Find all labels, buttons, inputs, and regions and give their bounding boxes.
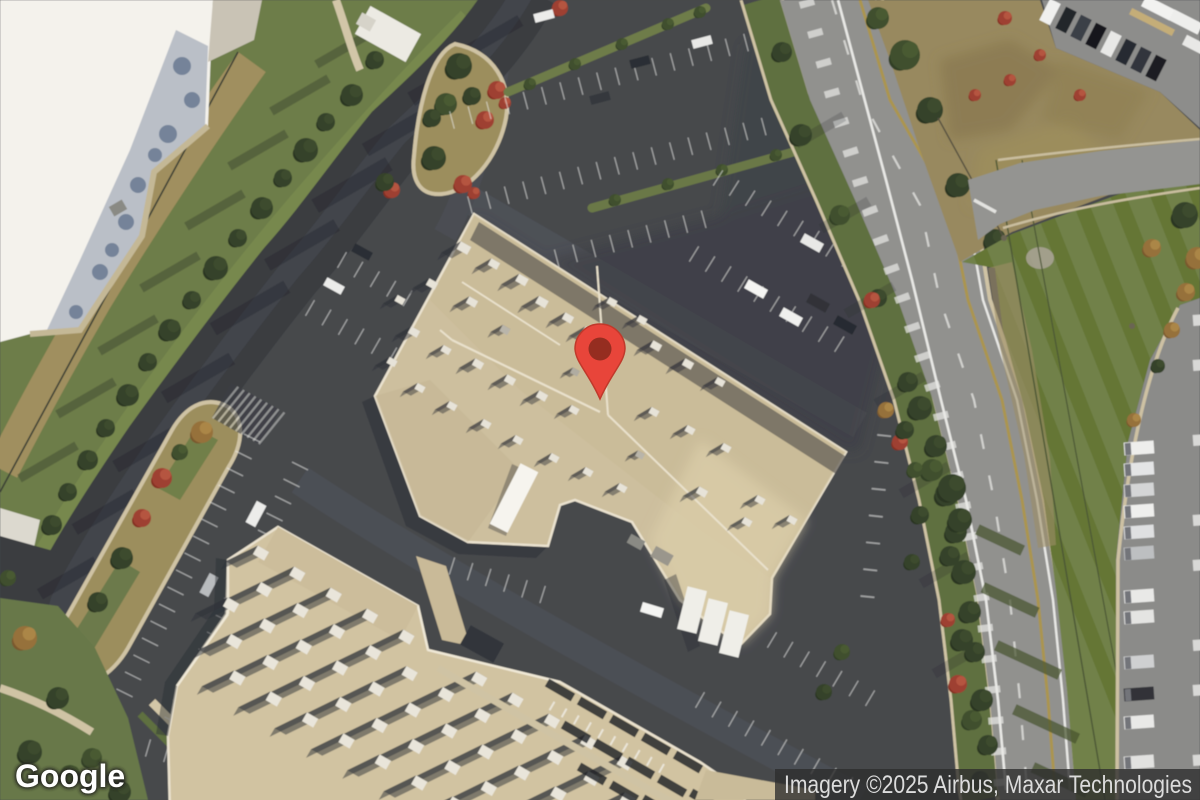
svg-text:Google: Google (15, 758, 125, 794)
svg-text:Imagery ©2025 Airbus, Maxar Te: Imagery ©2025 Airbus, Maxar Technologies (784, 771, 1192, 799)
